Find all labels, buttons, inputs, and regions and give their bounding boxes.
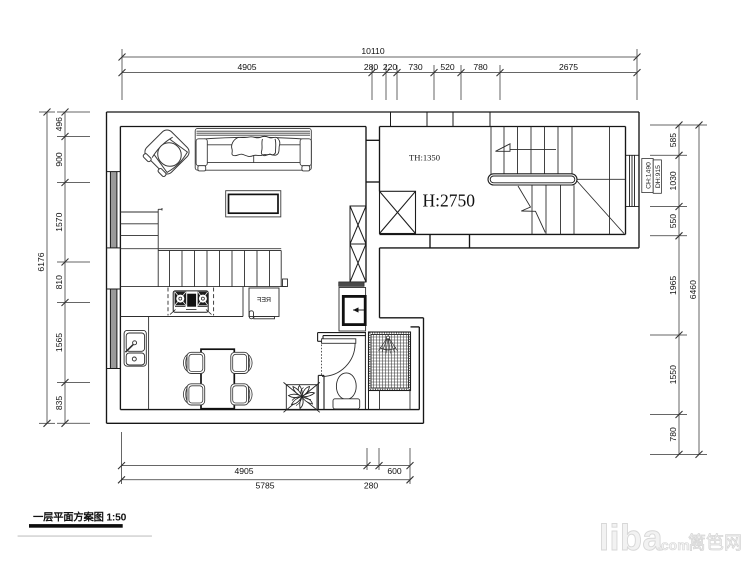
svg-text:4905: 4905 — [234, 466, 253, 476]
svg-text:1550: 1550 — [668, 365, 678, 384]
svg-text:835: 835 — [54, 396, 64, 411]
svg-text:liba: liba — [599, 517, 663, 558]
svg-text:2675: 2675 — [559, 62, 578, 72]
svg-text:1965: 1965 — [668, 276, 678, 295]
svg-text:730: 730 — [408, 62, 423, 72]
svg-text:280: 280 — [364, 62, 379, 72]
svg-text:DH:915: DH:915 — [655, 165, 662, 188]
svg-text:5785: 5785 — [255, 480, 274, 490]
svg-text:780: 780 — [473, 62, 488, 72]
svg-text:550: 550 — [668, 214, 678, 229]
svg-text:600: 600 — [387, 466, 402, 476]
svg-text:280: 280 — [364, 480, 379, 490]
svg-text:H:2750: H:2750 — [423, 191, 476, 211]
svg-text:1030: 1030 — [668, 171, 678, 190]
svg-text:6460: 6460 — [688, 280, 698, 299]
svg-text:780: 780 — [668, 427, 678, 442]
svg-text:REF: REF — [257, 297, 271, 304]
svg-text:.com: .com — [657, 537, 690, 553]
svg-text:10110: 10110 — [361, 46, 384, 56]
svg-text:CH:1490: CH:1490 — [645, 162, 652, 189]
svg-text:TH:1350: TH:1350 — [409, 153, 440, 163]
svg-text:一层平面方案图 1:50: 一层平面方案图 1:50 — [33, 511, 127, 524]
svg-text:1570: 1570 — [54, 212, 64, 231]
svg-text:520: 520 — [440, 62, 455, 72]
svg-text:220: 220 — [383, 62, 398, 72]
svg-text:1565: 1565 — [54, 333, 64, 352]
svg-text:900: 900 — [54, 152, 64, 167]
svg-text:585: 585 — [668, 133, 678, 148]
svg-text:496: 496 — [54, 117, 64, 132]
svg-text:篱笆网: 篱笆网 — [688, 533, 742, 553]
svg-text:810: 810 — [54, 275, 64, 290]
svg-text:4905: 4905 — [237, 62, 256, 72]
svg-text:6176: 6176 — [36, 252, 46, 271]
